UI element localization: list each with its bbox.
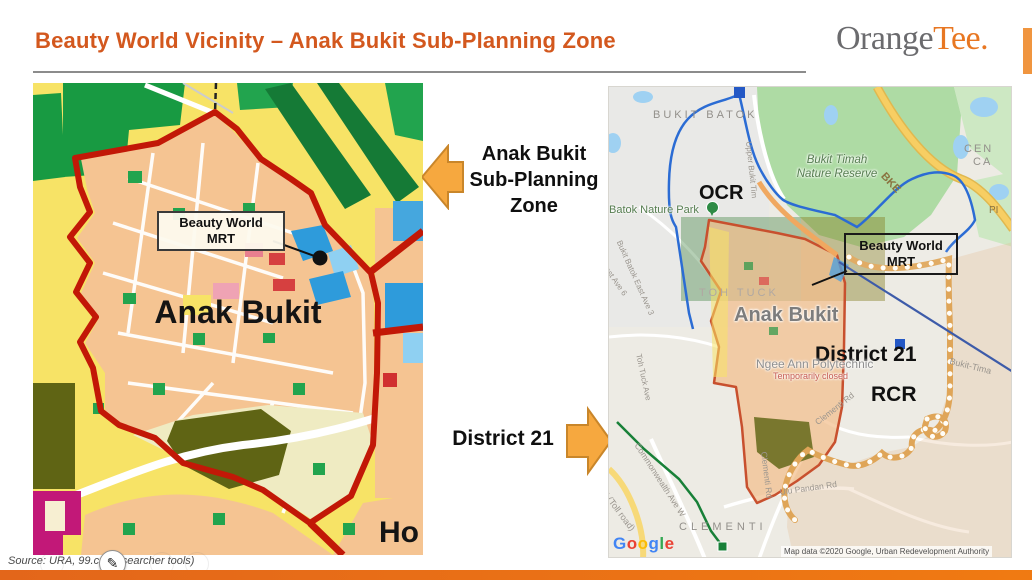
beauty-world-mrt-label-right: Beauty World MRT xyxy=(844,233,958,275)
ura-master-plan-map: Beauty World MRT Anak Bukit Ho xyxy=(33,83,423,555)
region-label-toh-tuck: TOH TUCK xyxy=(699,287,779,299)
callout-line2: Sub-Planning xyxy=(455,167,613,193)
region-label-bukit-batok: BUKIT BATOK xyxy=(653,109,758,121)
anak-bukit-zone-title: Anak Bukit xyxy=(118,294,358,331)
label-ocr: OCR xyxy=(699,182,743,205)
area-label-anak-bukit: Anak Bukit xyxy=(734,304,838,327)
poi-status-temporarily-closed: Temporarily closed xyxy=(773,371,848,381)
mrt-label-line2: MRT xyxy=(163,231,279,247)
map-attribution: Map data ©2020 Google, Urban Redevelopme… xyxy=(781,546,992,557)
logo-text-orange: Tee xyxy=(933,20,980,57)
google-map: BUKIT BATOK Bukit Timah Nature Reserve B… xyxy=(608,86,1012,558)
label-rcr: RCR xyxy=(871,383,917,407)
region-label-clementi: CLEMENTI xyxy=(679,521,767,533)
park-label-batok-nature: Batok Nature Park xyxy=(609,204,699,216)
region-label-ca: CA xyxy=(973,156,992,168)
title-divider xyxy=(33,71,806,73)
right-arrow xyxy=(566,404,612,478)
orangetee-logo: OrangeTee. xyxy=(836,20,988,58)
road-label-pi: PI xyxy=(989,205,998,216)
mrt-label-line1: Beauty World xyxy=(163,215,279,231)
boundary-marker-square xyxy=(734,87,745,98)
beauty-world-mrt-label-left: Beauty World MRT xyxy=(157,211,285,251)
callout-line3: Zone xyxy=(455,193,613,219)
region-label-cen: CEN xyxy=(964,143,993,155)
google-logo: Google xyxy=(613,534,675,554)
bottom-accent-bar xyxy=(0,570,1032,580)
right-edge-accent xyxy=(1023,28,1032,74)
cutoff-area-label: Ho xyxy=(379,516,419,550)
presentation-slide: Beauty World Vicinity – Anak Bukit Sub-P… xyxy=(0,0,1032,580)
district-21-callout: District 21 xyxy=(444,427,562,451)
page-title: Beauty World Vicinity – Anak Bukit Sub-P… xyxy=(35,28,616,54)
park-pin-icon xyxy=(706,201,719,214)
sub-planning-zone-callout: Anak Bukit Sub-Planning Zone xyxy=(455,141,613,219)
logo-text-gray: Orange xyxy=(836,20,933,57)
callout-line1: Anak Bukit xyxy=(455,141,613,167)
rail-marker xyxy=(718,542,727,551)
mrt-station-dot xyxy=(313,251,328,266)
poi-label-ngee-ann: Ngee Ann Polytechnic xyxy=(756,357,873,371)
logo-period: . xyxy=(980,20,988,57)
